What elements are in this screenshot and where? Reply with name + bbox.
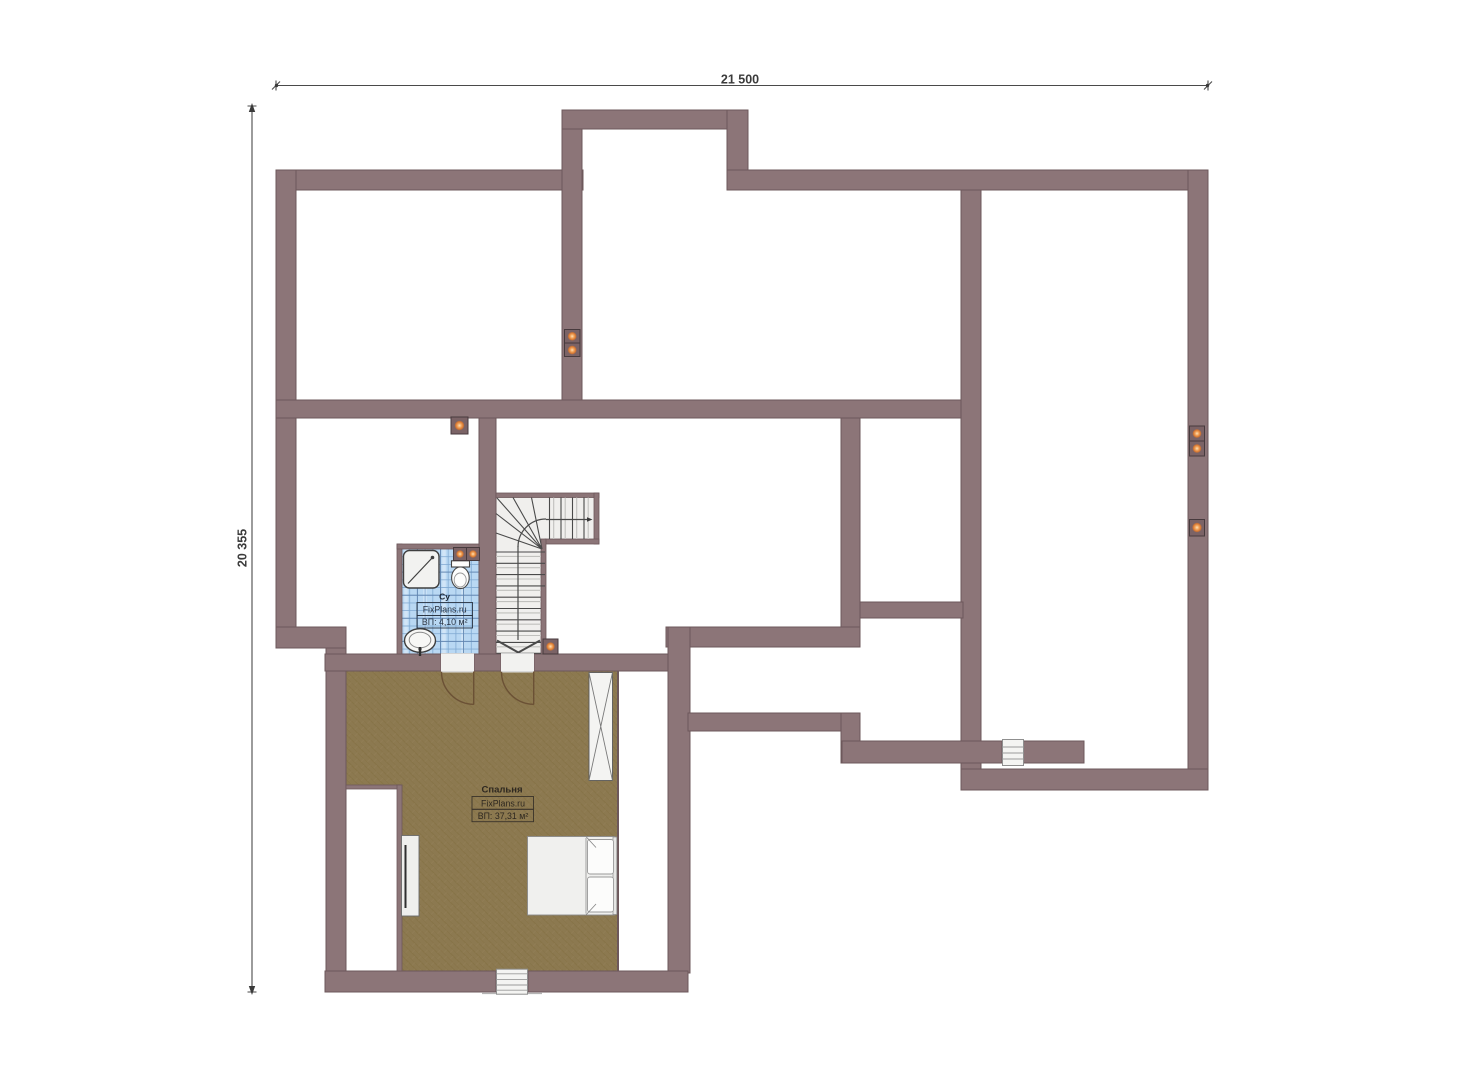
svg-text:Спальня: Спальня	[481, 785, 522, 796]
svg-text:21 500: 21 500	[721, 73, 759, 87]
svg-text:ВП: 37,31 м²: ВП: 37,31 м²	[478, 811, 529, 821]
svg-text:FixPlans.ru: FixPlans.ru	[481, 799, 525, 809]
svg-text:20 355: 20 355	[236, 529, 250, 567]
svg-text:ВП: 4,10 м²: ВП: 4,10 м²	[422, 617, 468, 627]
svg-text:FixPlans.ru: FixPlans.ru	[423, 605, 467, 615]
svg-text:Су: Су	[439, 592, 450, 602]
